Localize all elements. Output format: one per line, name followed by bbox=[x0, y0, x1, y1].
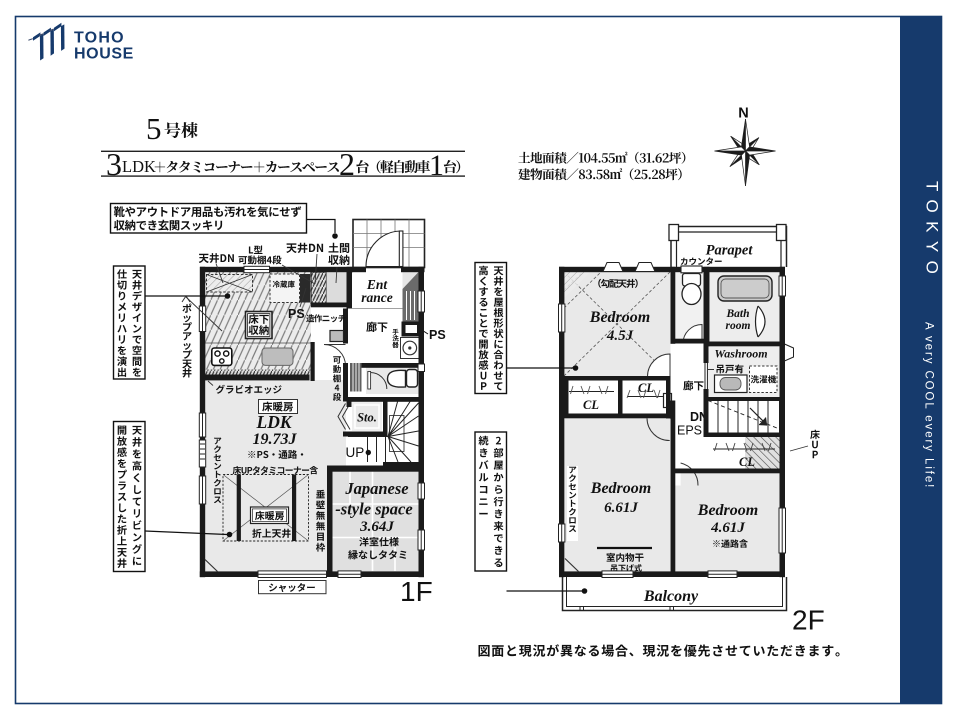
svg-text:UP: UP bbox=[346, 445, 365, 460]
svg-text:PS: PS bbox=[288, 307, 305, 321]
svg-text:A very COOL every Life!: A very COOL every Life! bbox=[923, 322, 935, 489]
svg-text:HOUSE: HOUSE bbox=[74, 46, 134, 63]
svg-text:Washroom: Washroom bbox=[714, 347, 767, 361]
svg-text:LDK: LDK bbox=[122, 157, 156, 176]
svg-text:1: 1 bbox=[429, 149, 444, 182]
svg-text:Sto.: Sto. bbox=[357, 411, 377, 425]
svg-text:Bedroom: Bedroom bbox=[697, 502, 758, 519]
svg-text:EPS: EPS bbox=[677, 424, 702, 438]
svg-text:N: N bbox=[738, 106, 748, 122]
svg-text:Bath: Bath bbox=[725, 308, 749, 320]
svg-text:CL: CL bbox=[583, 398, 599, 412]
svg-text:4.5J: 4.5J bbox=[606, 328, 634, 344]
svg-text:1F: 1F bbox=[400, 576, 433, 607]
svg-text:Bedroom: Bedroom bbox=[590, 480, 651, 497]
svg-text:PS: PS bbox=[429, 328, 446, 342]
svg-text:rance: rance bbox=[361, 290, 393, 305]
svg-text:6.61J: 6.61J bbox=[604, 500, 638, 516]
svg-text:Balcony: Balcony bbox=[643, 588, 699, 605]
svg-text:19.73J: 19.73J bbox=[253, 431, 298, 448]
svg-text:LDK: LDK bbox=[256, 412, 293, 432]
svg-text:CL: CL bbox=[739, 455, 755, 469]
svg-text:3.64J: 3.64J bbox=[359, 519, 394, 535]
svg-text:Parapet: Parapet bbox=[706, 243, 754, 259]
svg-text:4.61J: 4.61J bbox=[710, 520, 745, 536]
svg-text:TOHO: TOHO bbox=[74, 30, 125, 47]
svg-text:-style space: -style space bbox=[335, 500, 412, 519]
svg-text:room: room bbox=[726, 320, 751, 332]
svg-text:Japanese: Japanese bbox=[344, 479, 408, 498]
svg-text:Bedrοοm: Bedrοοm bbox=[589, 309, 650, 326]
svg-text:2F: 2F bbox=[792, 605, 825, 636]
svg-text:TOKYO: TOKYO bbox=[923, 181, 942, 282]
svg-text:CL: CL bbox=[638, 381, 654, 395]
svg-text:5: 5 bbox=[146, 111, 162, 146]
